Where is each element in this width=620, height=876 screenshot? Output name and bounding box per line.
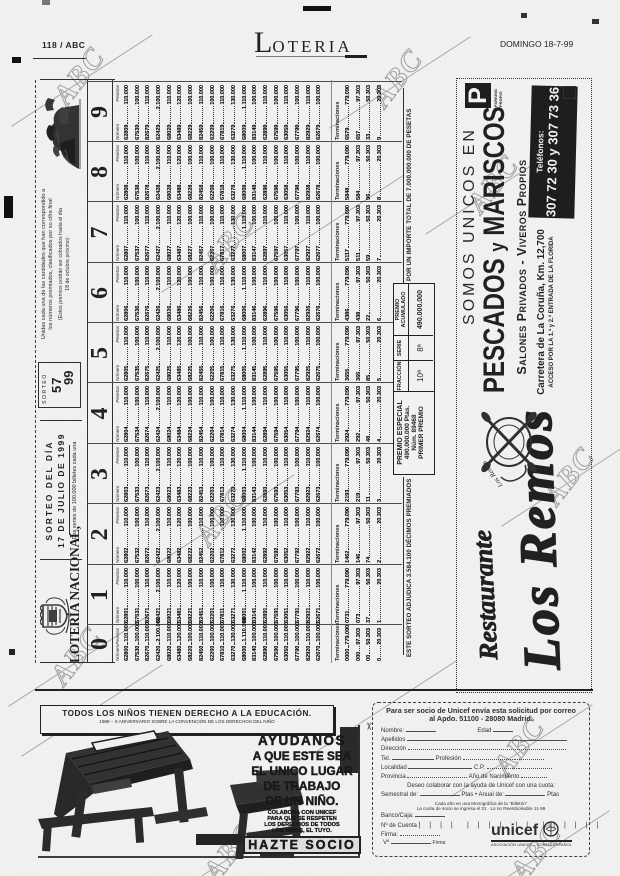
svg-text:Los Remos: Los Remos (480, 459, 505, 487)
